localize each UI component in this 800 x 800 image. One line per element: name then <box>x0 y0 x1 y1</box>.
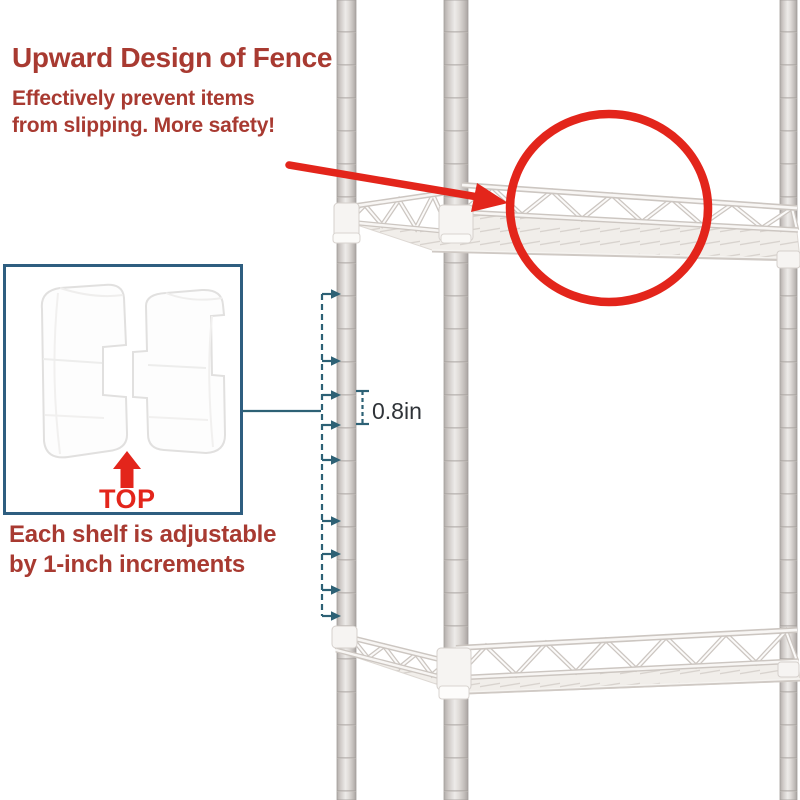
top-shelf <box>333 185 800 268</box>
clip-half-right <box>133 290 225 453</box>
increment-bracket <box>356 391 369 424</box>
clip-inset-box <box>3 264 243 515</box>
clip-half-left <box>42 285 127 458</box>
clip-halves-illustration <box>6 267 240 512</box>
pole-back-left <box>337 0 356 800</box>
fence-highlight-circle <box>510 114 708 302</box>
product-annotation-image: Upward Design of Fence Effectively preve… <box>0 0 800 800</box>
bottom-shelf <box>332 626 800 699</box>
measurement-dashed-line <box>243 289 341 621</box>
